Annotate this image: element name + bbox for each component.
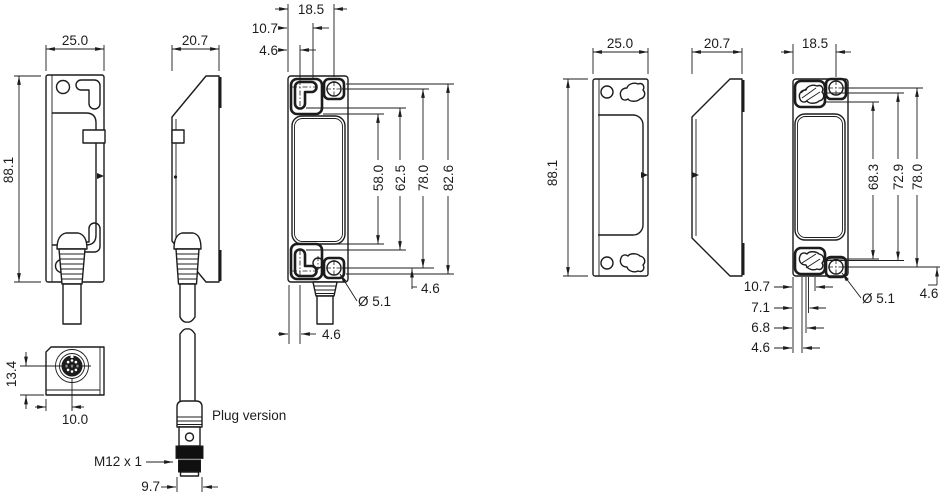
thread-label: M12 x 1 [94,454,142,469]
dim-bottom-chain3-label: 6.8 [751,320,770,335]
dim-right-offset-label: 4.6 [421,281,440,296]
flush-mount-version-group: 25.0 88.1 20.7 [545,36,940,355]
dim-height-label: 88.1 [545,160,560,186]
dim-front-width-label: 18.5 [802,36,828,51]
dimension-drawing: 25.0 88.1 20.7 [0,0,940,498]
plug-version-label: Plug version [212,408,286,423]
dim-bottom-chain4-label: 4.6 [751,340,770,355]
m12-plug: Plug version M12 x 1 9.7 [94,401,286,494]
right-front-view: 18.5 68.3 72.9 78.0 4.6 Ø 5.1 10.7 [744,36,940,355]
cable-gland [57,233,87,324]
dim-depth-label: 20.7 [182,33,208,48]
dim-hole-dia-label: Ø 5.1 [358,294,391,309]
dim-hole-offset2-label: 4.6 [259,43,278,58]
left-front-view: 18.5 10.7 4.6 58.0 62.5 78.0 82.6 [252,2,456,344]
technical-drawing-canvas: 25.0 88.1 20.7 [0,0,940,498]
left-bottom-view: 13.4 10.0 [4,347,104,427]
dim-right-offset-label: 4.6 [920,286,939,301]
dim-width-label: 25.0 [607,36,633,51]
left-side-view: 25.0 88.1 [1,33,105,324]
cable [63,284,81,324]
dim-chain2-label: 72.9 [891,164,906,190]
cable [180,329,195,402]
connector-tab [83,130,105,143]
thread [179,460,201,472]
knurled-nut [176,446,203,459]
optical-axis-marker [174,175,177,178]
dim-chain1-label: 68.3 [866,164,881,190]
dim-depth-label: 20.7 [704,36,730,51]
left-side-view-2: 20.7 [172,33,220,402]
dim-chain3-label: 78.0 [910,164,925,190]
cable-gland [313,282,337,324]
cable [180,284,195,322]
dim-plug-width-label: 9.7 [141,479,160,494]
dim-front-width-label: 18.5 [298,2,324,17]
dim-chain2-label: 62.5 [393,165,408,191]
cable [317,296,333,324]
dim-hole-offset1-label: 10.7 [252,21,278,36]
dim-width-label: 25.0 [62,33,88,48]
connector-tab [172,130,184,143]
right-side-view-2: 20.7 [692,36,743,276]
cable-gland [174,233,201,402]
dim-bottom-chain1-label: 10.7 [744,279,770,294]
dim-hole-dia-label: Ø 5.1 [862,291,895,306]
dim-bottom-height-label: 13.4 [4,360,19,387]
dim-chain1-label: 58.0 [371,165,386,191]
dim-bottom-offset-label: 4.6 [322,327,341,342]
right-side-view: 25.0 88.1 [545,36,648,276]
dim-bottom-chain2-label: 7.1 [751,300,770,315]
dim-chain4-label: 82.6 [441,165,456,191]
dim-chain3-label: 78.0 [416,165,431,191]
dim-bottom-width-label: 10.0 [62,412,88,427]
cable-version-group: 25.0 88.1 20.7 [1,2,456,494]
dim-height-label: 88.1 [1,157,16,183]
